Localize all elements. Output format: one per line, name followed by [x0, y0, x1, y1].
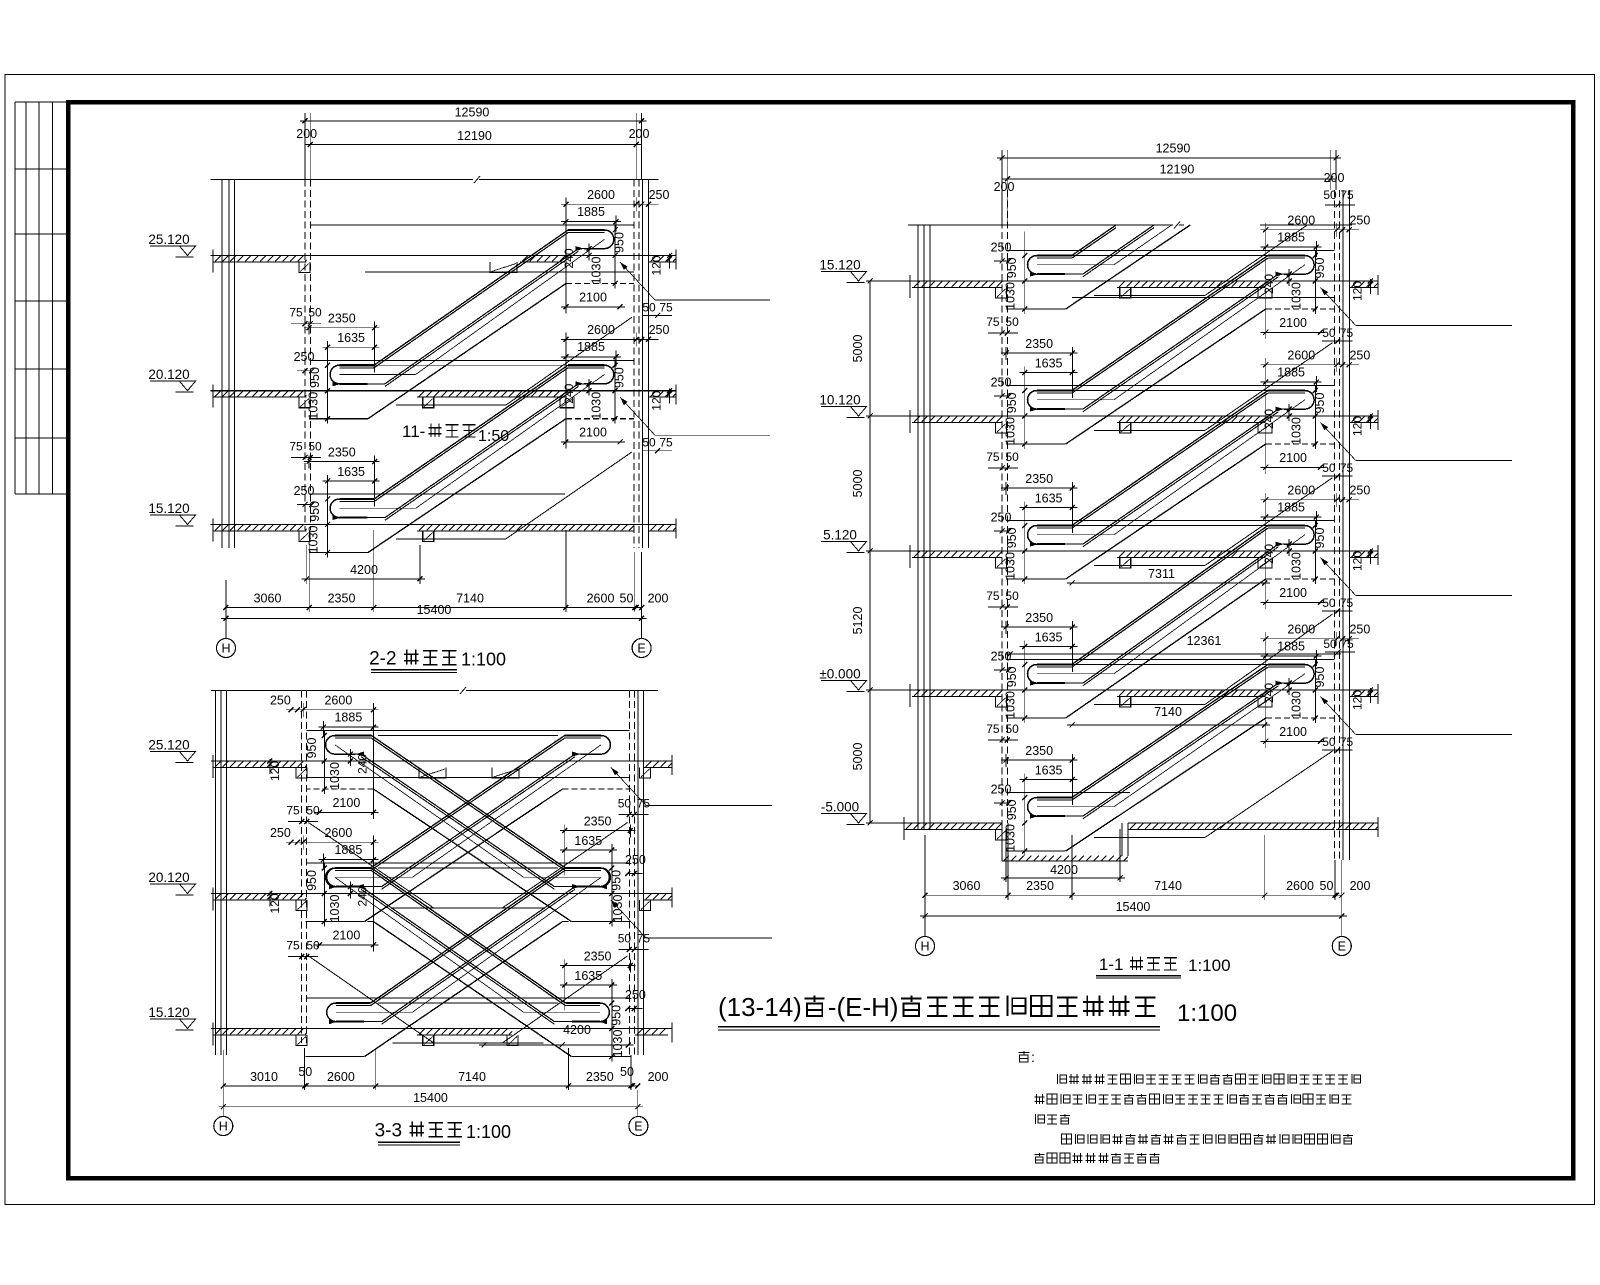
svg-text:25.120: 25.120 — [148, 232, 189, 247]
svg-text:950: 950 — [1313, 393, 1327, 414]
svg-text:1885: 1885 — [1277, 366, 1305, 380]
svg-text:950: 950 — [308, 501, 322, 522]
svg-text:15400: 15400 — [1116, 900, 1151, 914]
svg-text:50: 50 — [618, 932, 632, 946]
svg-text:3010: 3010 — [250, 1070, 278, 1084]
svg-text:75: 75 — [286, 804, 300, 818]
svg-text:12590: 12590 — [1156, 142, 1191, 156]
svg-text:1885: 1885 — [334, 711, 362, 725]
svg-text:2600: 2600 — [1287, 623, 1315, 637]
svg-text:4200: 4200 — [1050, 863, 1078, 877]
svg-text:1030: 1030 — [1004, 691, 1018, 719]
svg-text:2100: 2100 — [579, 426, 607, 440]
svg-text:5.120: 5.120 — [823, 528, 857, 543]
svg-text:1:100: 1:100 — [1177, 1000, 1237, 1027]
svg-text:3060: 3060 — [254, 592, 282, 606]
svg-text:2600: 2600 — [1287, 349, 1315, 363]
svg-text:950: 950 — [1005, 799, 1019, 820]
svg-text:50: 50 — [306, 804, 320, 818]
svg-text:2600: 2600 — [327, 1070, 355, 1084]
svg-text:3-3: 3-3 — [375, 1121, 402, 1142]
svg-text:240: 240 — [1262, 409, 1276, 429]
svg-text:2600: 2600 — [1286, 879, 1314, 893]
svg-text:1885: 1885 — [1277, 231, 1305, 245]
svg-text:1030: 1030 — [590, 257, 604, 285]
svg-text:2100: 2100 — [1279, 725, 1307, 739]
svg-text:50: 50 — [1322, 326, 1336, 340]
svg-text:950: 950 — [609, 870, 623, 891]
svg-text:7140: 7140 — [1154, 705, 1182, 719]
svg-text:200: 200 — [629, 127, 650, 141]
svg-text:2350: 2350 — [584, 950, 612, 964]
svg-text:E: E — [637, 642, 645, 656]
svg-text:50: 50 — [642, 436, 656, 450]
svg-text:2600: 2600 — [587, 592, 615, 606]
svg-text:50: 50 — [1322, 596, 1336, 610]
svg-text:250: 250 — [294, 484, 315, 498]
svg-text:E: E — [634, 1120, 642, 1134]
svg-text:2600: 2600 — [1287, 214, 1315, 228]
svg-text:-(E-H): -(E-H) — [828, 992, 899, 1022]
svg-text:50: 50 — [620, 1065, 634, 1079]
svg-text:1635: 1635 — [574, 834, 602, 848]
svg-text:75: 75 — [1340, 188, 1354, 202]
svg-text:200: 200 — [648, 1070, 669, 1084]
svg-text:7311: 7311 — [1148, 567, 1175, 581]
svg-text:950: 950 — [1313, 528, 1327, 549]
svg-text:50: 50 — [618, 797, 632, 811]
svg-text:240: 240 — [562, 383, 576, 403]
svg-text:2350: 2350 — [328, 446, 356, 460]
svg-text:250: 250 — [1349, 214, 1370, 228]
svg-text:240: 240 — [1262, 274, 1276, 294]
svg-text:240: 240 — [1262, 544, 1276, 564]
svg-text:75: 75 — [1340, 637, 1354, 651]
svg-text:200: 200 — [1350, 879, 1371, 893]
svg-text:25.120: 25.120 — [148, 738, 189, 753]
svg-text:50: 50 — [298, 1065, 312, 1079]
svg-text:12190: 12190 — [457, 129, 492, 143]
svg-text:240: 240 — [355, 886, 369, 906]
svg-text:75: 75 — [637, 932, 651, 946]
svg-text:15.120: 15.120 — [148, 501, 189, 516]
svg-text:50: 50 — [1322, 461, 1336, 475]
svg-text:5000: 5000 — [851, 470, 865, 498]
svg-text:50: 50 — [1005, 722, 1019, 736]
svg-text:(13-14): (13-14) — [718, 992, 802, 1022]
svg-text:250: 250 — [625, 988, 646, 1002]
svg-text:-5.000: -5.000 — [821, 800, 859, 815]
svg-text:1030: 1030 — [1290, 417, 1304, 445]
svg-text:75: 75 — [286, 939, 300, 953]
svg-text:950: 950 — [609, 1005, 623, 1026]
svg-text:120: 120 — [1350, 551, 1364, 571]
svg-text:1030: 1030 — [1004, 282, 1018, 310]
svg-text:240: 240 — [355, 754, 369, 774]
svg-text:75: 75 — [1340, 461, 1354, 475]
svg-text:1030: 1030 — [307, 392, 321, 420]
svg-text:7140: 7140 — [456, 592, 484, 606]
svg-text:H: H — [219, 1120, 228, 1134]
svg-text:950: 950 — [1313, 667, 1327, 688]
svg-text:250: 250 — [270, 694, 291, 708]
svg-text:2350: 2350 — [586, 1070, 614, 1084]
svg-text:1030: 1030 — [1290, 691, 1304, 719]
svg-text:1635: 1635 — [1035, 631, 1063, 645]
svg-text:50: 50 — [306, 939, 320, 953]
svg-text:2100: 2100 — [332, 929, 360, 943]
svg-text:7140: 7140 — [458, 1070, 486, 1084]
svg-text:1030: 1030 — [1004, 417, 1018, 445]
svg-text:1-1: 1-1 — [1099, 955, 1124, 974]
svg-text:50: 50 — [1005, 589, 1019, 603]
svg-text:75: 75 — [1340, 326, 1354, 340]
svg-text:75: 75 — [659, 301, 673, 315]
svg-text:1:100: 1:100 — [466, 1122, 511, 1142]
svg-text:250: 250 — [991, 783, 1012, 797]
svg-text:50: 50 — [1323, 188, 1337, 202]
svg-text:2600: 2600 — [1287, 484, 1315, 498]
svg-text:950: 950 — [1313, 258, 1327, 279]
svg-text:950: 950 — [613, 367, 627, 388]
svg-text:2600: 2600 — [587, 323, 615, 337]
svg-text:950: 950 — [1005, 392, 1019, 413]
svg-text:15.120: 15.120 — [819, 258, 860, 273]
svg-text:E: E — [1338, 940, 1346, 954]
svg-text:250: 250 — [649, 188, 670, 202]
svg-text:50: 50 — [1005, 450, 1019, 464]
svg-text:1030: 1030 — [611, 895, 625, 923]
svg-text:15400: 15400 — [413, 1091, 448, 1105]
svg-text:1635: 1635 — [1035, 492, 1063, 506]
svg-text:2350: 2350 — [1025, 337, 1053, 351]
svg-text:5000: 5000 — [851, 743, 865, 771]
svg-text:11-: 11- — [402, 422, 425, 441]
svg-text:950: 950 — [1005, 257, 1019, 278]
svg-text:20.120: 20.120 — [148, 367, 189, 382]
svg-text:75: 75 — [289, 440, 303, 454]
svg-text:2100: 2100 — [332, 796, 360, 810]
svg-text:2100: 2100 — [1279, 316, 1307, 330]
svg-text:3060: 3060 — [953, 879, 981, 893]
svg-text:2350: 2350 — [1025, 611, 1053, 625]
svg-text:1:100: 1:100 — [461, 650, 506, 670]
svg-text:1030: 1030 — [590, 392, 604, 420]
svg-text:950: 950 — [308, 367, 322, 388]
svg-text:1635: 1635 — [337, 465, 365, 479]
svg-text:120: 120 — [650, 390, 664, 410]
svg-text:50: 50 — [1322, 735, 1336, 749]
svg-text:2600: 2600 — [587, 188, 615, 202]
svg-text:120: 120 — [1350, 416, 1364, 436]
svg-text:4200: 4200 — [563, 1023, 591, 1037]
svg-text:10.120: 10.120 — [819, 393, 860, 408]
svg-text:50: 50 — [1320, 879, 1334, 893]
svg-text:15400: 15400 — [417, 603, 452, 617]
svg-text:120: 120 — [1350, 690, 1364, 710]
svg-text:1:100: 1:100 — [1188, 956, 1231, 975]
svg-text:250: 250 — [625, 853, 646, 867]
svg-text:240: 240 — [1262, 683, 1276, 703]
svg-text:H: H — [221, 642, 230, 656]
svg-text:200: 200 — [648, 592, 669, 606]
svg-text:75: 75 — [986, 589, 1000, 603]
svg-text:2350: 2350 — [1025, 744, 1053, 758]
svg-text:1635: 1635 — [1035, 357, 1063, 371]
svg-text:2100: 2100 — [579, 291, 607, 305]
svg-text:250: 250 — [649, 323, 670, 337]
svg-text:12190: 12190 — [1160, 163, 1195, 177]
svg-text:250: 250 — [991, 241, 1012, 255]
svg-text:250: 250 — [991, 376, 1012, 390]
svg-text:75: 75 — [1340, 596, 1354, 610]
svg-text:120: 120 — [650, 255, 664, 275]
svg-text:12361: 12361 — [1187, 634, 1222, 648]
svg-text:250: 250 — [991, 511, 1012, 525]
svg-text:250: 250 — [1349, 349, 1370, 363]
svg-text:1635: 1635 — [574, 969, 602, 983]
svg-text:50: 50 — [642, 301, 656, 315]
svg-text:1885: 1885 — [1277, 640, 1305, 654]
svg-text:50: 50 — [620, 592, 634, 606]
svg-text:2100: 2100 — [1279, 451, 1307, 465]
svg-text:200: 200 — [1324, 171, 1345, 185]
svg-text:950: 950 — [1005, 527, 1019, 548]
svg-text:1030: 1030 — [1290, 282, 1304, 310]
svg-text:15.120: 15.120 — [148, 1005, 189, 1020]
svg-text:1885: 1885 — [334, 843, 362, 857]
svg-text:250: 250 — [1349, 484, 1370, 498]
svg-text:1030: 1030 — [611, 1030, 625, 1058]
svg-text:2350: 2350 — [1026, 879, 1054, 893]
svg-text:±0.000: ±0.000 — [819, 667, 860, 682]
svg-text:5120: 5120 — [851, 607, 865, 635]
svg-text:250: 250 — [270, 826, 291, 840]
svg-text:250: 250 — [294, 350, 315, 364]
svg-text:75: 75 — [637, 797, 651, 811]
svg-text:2350: 2350 — [1025, 472, 1053, 486]
svg-text:75: 75 — [986, 315, 1000, 329]
svg-text:2-2: 2-2 — [369, 649, 396, 670]
svg-text:200: 200 — [296, 127, 317, 141]
svg-text:1030: 1030 — [307, 526, 321, 554]
svg-text:50: 50 — [308, 440, 322, 454]
svg-text:1030: 1030 — [328, 762, 342, 790]
svg-text:240: 240 — [562, 248, 576, 268]
svg-text:12590: 12590 — [455, 106, 490, 120]
svg-text:75: 75 — [289, 306, 303, 320]
svg-text:2600: 2600 — [324, 826, 352, 840]
svg-text:75: 75 — [986, 722, 1000, 736]
svg-text:5000: 5000 — [851, 335, 865, 363]
svg-text:1030: 1030 — [1290, 552, 1304, 580]
svg-text:2350: 2350 — [584, 815, 612, 829]
svg-text:950: 950 — [305, 870, 319, 891]
svg-text:250: 250 — [1349, 623, 1370, 637]
svg-text:75: 75 — [986, 450, 1000, 464]
svg-text:1030: 1030 — [328, 895, 342, 923]
svg-text:50: 50 — [1323, 637, 1337, 651]
svg-text:1635: 1635 — [1035, 764, 1063, 778]
svg-text:75: 75 — [659, 436, 673, 450]
svg-text:7140: 7140 — [1154, 879, 1182, 893]
svg-text:950: 950 — [1005, 666, 1019, 687]
svg-text:200: 200 — [994, 180, 1015, 194]
svg-text::: : — [1031, 1049, 1035, 1065]
svg-text:950: 950 — [305, 738, 319, 759]
svg-text:2600: 2600 — [324, 694, 352, 708]
svg-text:1635: 1635 — [337, 331, 365, 345]
svg-text:50: 50 — [308, 306, 322, 320]
svg-text:1885: 1885 — [577, 340, 605, 354]
svg-text:1:50: 1:50 — [478, 428, 509, 445]
svg-text:2350: 2350 — [328, 312, 356, 326]
svg-text:950: 950 — [613, 232, 627, 253]
svg-text:1030: 1030 — [1004, 552, 1018, 580]
svg-text:H: H — [920, 940, 929, 954]
svg-text:50: 50 — [1005, 315, 1019, 329]
svg-text:75: 75 — [1340, 735, 1354, 749]
svg-text:120: 120 — [1350, 281, 1364, 301]
svg-text:2100: 2100 — [1279, 586, 1307, 600]
svg-text:20.120: 20.120 — [148, 870, 189, 885]
svg-text:2350: 2350 — [328, 592, 356, 606]
svg-text:1885: 1885 — [577, 205, 605, 219]
svg-text:1885: 1885 — [1277, 501, 1305, 515]
